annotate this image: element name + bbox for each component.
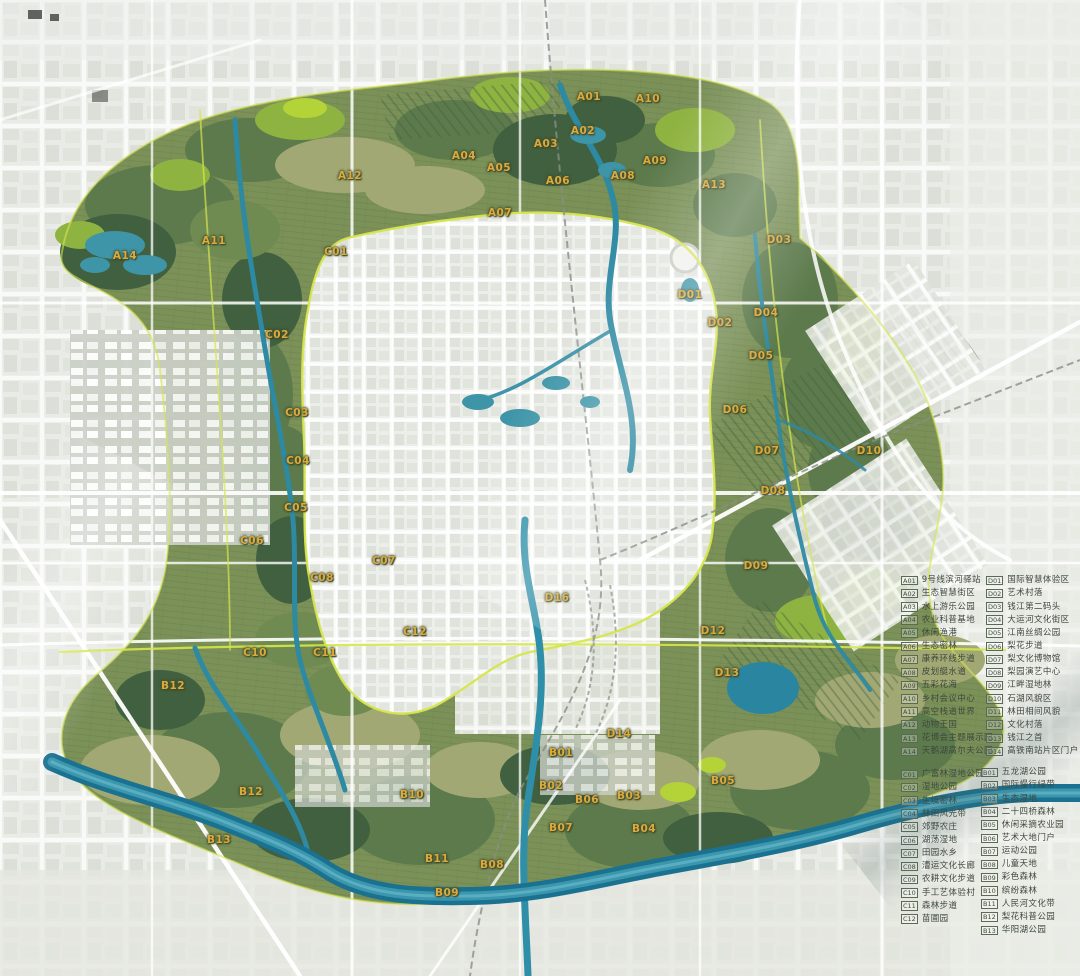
legend-label-text: 国际智慧体验区 — [1007, 576, 1069, 585]
legend-label-text: 休闲渔港 — [922, 629, 958, 638]
legend-label-text: 康养环线步道 — [922, 655, 975, 664]
legend-label-text: 农耕文化步道 — [922, 875, 975, 884]
legend-label-text: 艺术村落 — [1007, 589, 1043, 598]
legend-label-text: 生境密林 — [922, 797, 958, 806]
legend-label-text: 文化村落 — [1007, 721, 1043, 730]
legend-code-box: B08 — [981, 860, 998, 870]
legend-code-box: C02 — [901, 783, 918, 793]
legend-item-d07: D07梨文化博物馆 — [986, 653, 1078, 666]
legend-label-text: 漕运文化长廊 — [922, 862, 975, 871]
legend-item-b02: B02国际慢行绿带 — [981, 779, 1064, 792]
legend-label-text: 生态湿地 — [1002, 795, 1038, 804]
legend-item-d05: D05江南丝绸公园 — [986, 627, 1078, 640]
legend-code-box: C11 — [901, 901, 918, 911]
legend-item-c07: C07田园水乡 — [901, 847, 984, 860]
legend-label-text: 彩色森林 — [1002, 873, 1038, 882]
legend-code-box: D06 — [986, 642, 1003, 652]
map-region-label-a01: A01 — [577, 91, 601, 103]
legend-label-text: 钱江第二码头 — [1007, 603, 1060, 612]
legend-group-zone-d: D01国际智慧体验区D02艺术村落D03钱江第二码头D04大运河文化街区D05江… — [986, 574, 1078, 758]
map-region-label-d03: D03 — [767, 234, 792, 246]
map-region-label-a03: A03 — [534, 138, 558, 150]
legend-code-box: C06 — [901, 836, 918, 846]
legend-code-box: B01 — [981, 768, 998, 778]
map-region-label-a04: A04 — [452, 150, 476, 162]
map-region-label-c08: C08 — [310, 572, 334, 584]
legend-code-box: D11 — [986, 707, 1003, 717]
legend-label-text: 高铁南站片区门户 — [1007, 747, 1078, 756]
legend-code-box: B13 — [981, 926, 998, 936]
map-region-label-d16: D16 — [545, 592, 570, 604]
map-region-label-b02: B02 — [539, 780, 563, 792]
planning-map-page: A01A02A03A04A05A06A07A08A09A10A11A12A13A… — [0, 0, 1080, 976]
map-region-label-d04: D04 — [754, 307, 779, 319]
legend-label-text: 水上游乐公园 — [922, 603, 975, 612]
map-region-label-b09: B09 — [435, 887, 459, 899]
map-region-label-c03: C03 — [285, 407, 309, 419]
legend-label-text: 石湖风貌区 — [1007, 695, 1052, 704]
map-region-label-c01: C01 — [324, 246, 348, 258]
map-region-label-b08: B08 — [480, 859, 504, 871]
map-region-label-a11: A11 — [202, 235, 226, 247]
map-region-label-d01: D01 — [678, 289, 703, 301]
map-region-label-b04: B04 — [632, 823, 656, 835]
legend-item-d14: D14高铁南站片区门户 — [986, 745, 1078, 758]
map-region-label-a05: A05 — [487, 162, 511, 174]
legend-item-a09: A09五彩花海 — [901, 679, 993, 692]
legend-item-d13: D13钱江之首 — [986, 732, 1078, 745]
legend-label-text: 国际慢行绿带 — [1002, 781, 1055, 790]
legend-item-a04: A04农业科普基地 — [901, 613, 993, 626]
legend-item-d08: D08梨园演艺中心 — [986, 666, 1078, 679]
legend-code-box: D09 — [986, 681, 1003, 691]
legend-label-text: 大运河文化街区 — [1007, 616, 1069, 625]
legend-item-a10: A10乡村会议中心 — [901, 692, 993, 705]
legend-label-text: 郊野农庄 — [922, 823, 958, 832]
legend-item-b06: B06艺术大地门户 — [981, 832, 1064, 845]
legend-label-text: 运动公园 — [1002, 847, 1038, 856]
legend-item-a05: A05休闲渔港 — [901, 627, 993, 640]
legend-item-c06: C06湖荡湿地 — [901, 834, 984, 847]
legend-code-box: A07 — [901, 655, 918, 665]
legend-item-b11: B11人民河文化带 — [981, 897, 1064, 910]
map-region-label-a07: A07 — [488, 207, 512, 219]
legend-label-text: 林田风光带 — [922, 810, 967, 819]
legend-code-box: C01 — [901, 770, 918, 780]
map-region-label-b10: B10 — [400, 789, 424, 801]
legend-item-d04: D04大运河文化街区 — [986, 613, 1078, 626]
legend-label-text: 五彩花海 — [922, 681, 958, 690]
map-region-label-a06: A06 — [546, 175, 570, 187]
map-region-label-a09: A09 — [643, 155, 667, 167]
map-region-label-d12: D12 — [701, 625, 726, 637]
legend-label-text: 林田相间风貌 — [1007, 708, 1060, 717]
legend-label-text: 江畔湿地林 — [1007, 681, 1052, 690]
legend-code-box: C07 — [901, 849, 918, 859]
legend-code-box: A10 — [901, 694, 918, 704]
legend-code-box: B06 — [981, 834, 998, 844]
legend-code-box: A09 — [901, 681, 918, 691]
map-region-label-a14: A14 — [113, 250, 137, 262]
legend-label-text: 五龙湖公园 — [1002, 768, 1047, 777]
legend-code-box: D02 — [986, 589, 1003, 599]
legend-label-text: 9号线滨河驿站 — [922, 576, 981, 585]
legend-code-box: B09 — [981, 873, 998, 883]
legend-code-box: D05 — [986, 628, 1003, 638]
legend-item-a12: A12动物王国 — [901, 719, 993, 732]
legend-item-b07: B07运动公园 — [981, 845, 1064, 858]
legend-label-text: 江南丝绸公园 — [1007, 629, 1060, 638]
legend-label-text: 二十四桥森林 — [1002, 808, 1055, 817]
legend-code-box: A06 — [901, 642, 918, 652]
legend-code-box: A11 — [901, 707, 918, 717]
legend-label-text: 天鹅湖高尔夫公园 — [922, 747, 993, 756]
legend-code-box: D08 — [986, 668, 1003, 678]
legend-code-box: D10 — [986, 694, 1003, 704]
map-region-label-d09: D09 — [744, 560, 769, 572]
legend-code-box: A02 — [901, 589, 918, 599]
legend-item-b05: B05休闲采摘农业园 — [981, 819, 1064, 832]
map-region-label-d08: D08 — [761, 485, 786, 497]
legend-label-text: 休闲采摘农业园 — [1002, 821, 1064, 830]
map-region-label-a12: A12 — [338, 170, 362, 182]
legend-item-b08: B08儿童天地 — [981, 858, 1064, 871]
legend-label-text: 森林步道 — [922, 902, 958, 911]
legend-label-text: 梨花步道 — [1007, 642, 1043, 651]
map-region-label-b11: B11 — [425, 853, 449, 865]
legend-item-b04: B04二十四桥森林 — [981, 805, 1064, 818]
map-region-label-c06: C06 — [240, 535, 264, 547]
legend-group-zone-a: A019号线滨河驿站A02生态智慧街区A03水上游乐公园A04农业科普基地A05… — [901, 574, 993, 758]
legend-label-text: 梨文化博物馆 — [1007, 655, 1060, 664]
legend-code-box: B04 — [981, 807, 998, 817]
legend-item-b03: B03生态湿地 — [981, 792, 1064, 805]
legend-code-box: D03 — [986, 602, 1003, 612]
map-region-label-c02: C02 — [265, 329, 289, 341]
legend-label-text: 高空栈道世界 — [922, 708, 975, 717]
legend-item-d12: D12文化村落 — [986, 719, 1078, 732]
legend-label-text: 广富林湿地公园 — [922, 770, 984, 779]
map-region-label-b03: B03 — [617, 790, 641, 802]
legend-code-box: D14 — [986, 747, 1003, 757]
legend-label-text: 湖荡湿地 — [922, 836, 958, 845]
legend-label-text: 田园水乡 — [922, 849, 958, 858]
legend-label-text: 钱江之首 — [1007, 734, 1043, 743]
legend-code-box: A13 — [901, 734, 918, 744]
legend-item-c11: C11森林步道 — [901, 899, 984, 912]
legend-item-d10: D10石湖风貌区 — [986, 692, 1078, 705]
legend-code-box: A04 — [901, 615, 918, 625]
map-region-label-c05: C05 — [284, 502, 308, 514]
legend-item-d11: D11林田相间风貌 — [986, 705, 1078, 718]
map-region-label-d14: D14 — [607, 728, 632, 740]
legend-item-c08: C08漕运文化长廊 — [901, 860, 984, 873]
legend-item-c04: C04林田风光带 — [901, 807, 984, 820]
legend-code-box: B12 — [981, 912, 998, 922]
legend-item-d06: D06梨花步道 — [986, 640, 1078, 653]
legend-item-a03: A03水上游乐公园 — [901, 600, 993, 613]
legend-code-box: B02 — [981, 781, 998, 791]
legend-label-text: 缤纷森林 — [1002, 887, 1038, 896]
legend-label-text: 湿地公园 — [922, 783, 958, 792]
legend-item-c01: C01广富林湿地公园 — [901, 768, 984, 781]
legend-code-box: A05 — [901, 628, 918, 638]
map-region-label-c04: C04 — [286, 455, 310, 467]
legend-code-box: A03 — [901, 602, 918, 612]
map-region-label-c11: C11 — [313, 647, 337, 659]
legend-code-box: B11 — [981, 899, 998, 909]
legend-item-c10: C10手工艺体验村 — [901, 886, 984, 899]
legend-item-a08: A08皮划艇水道 — [901, 666, 993, 679]
map-region-label-b12: B12 — [239, 786, 263, 798]
legend-code-box: D13 — [986, 734, 1003, 744]
map-region-label-d13: D13 — [715, 667, 740, 679]
map-region-label-b06: B06 — [575, 794, 599, 806]
legend-code-box: C05 — [901, 822, 918, 832]
legend-code-box: C09 — [901, 875, 918, 885]
legend-label-text: 动物王国 — [922, 721, 958, 730]
map-region-label-d07: D07 — [755, 445, 780, 457]
legend-item-b09: B09彩色森林 — [981, 871, 1064, 884]
legend-code-box: A12 — [901, 720, 918, 730]
legend-code-box: C12 — [901, 914, 918, 924]
legend-code-box: D04 — [986, 615, 1003, 625]
legend-code-box: C04 — [901, 809, 918, 819]
legend-item-a06: A06生态密林 — [901, 640, 993, 653]
map-region-label-b05: B05 — [711, 775, 735, 787]
legend-code-box: A01 — [901, 576, 918, 586]
legend-item-b10: B10缤纷森林 — [981, 884, 1064, 897]
legend-label-text: 花博会主题展示园 — [922, 734, 993, 743]
legend-code-box: A14 — [901, 747, 918, 757]
legend-item-c09: C09农耕文化步道 — [901, 873, 984, 886]
legend-item-a13: A13花博会主题展示园 — [901, 732, 993, 745]
legend-item-c03: C03生境密林 — [901, 794, 984, 807]
legend-code-box: A08 — [901, 668, 918, 678]
legend-item-d02: D02艺术村落 — [986, 587, 1078, 600]
legend-item-b13: B13华阳湖公园 — [981, 924, 1064, 937]
map-region-label-c10: C10 — [243, 647, 267, 659]
legend-label-text: 手工艺体验村 — [922, 889, 975, 898]
legend-label-text: 苗圃园 — [922, 915, 949, 924]
legend-label-text: 梨花科普公园 — [1002, 913, 1055, 922]
legend-item-d03: D03钱江第二码头 — [986, 600, 1078, 613]
legend-label-text: 人民河文化带 — [1002, 900, 1055, 909]
legend-item-c02: C02湿地公园 — [901, 781, 984, 794]
legend-code-box: B07 — [981, 847, 998, 857]
legend-label-text: 生态智慧街区 — [922, 589, 975, 598]
legend-code-box: C08 — [901, 862, 918, 872]
legend-label-text: 梨园演艺中心 — [1007, 668, 1060, 677]
legend-label-text: 艺术大地门户 — [1002, 834, 1055, 843]
legend-item-a02: A02生态智慧街区 — [901, 587, 993, 600]
legend-code-box: D12 — [986, 720, 1003, 730]
legend-item-c12: C12苗圃园 — [901, 913, 984, 926]
legend-item-a01: A019号线滨河驿站 — [901, 574, 993, 587]
map-region-label-b07: B07 — [549, 822, 573, 834]
legend-label-text: 华阳湖公园 — [1002, 926, 1047, 935]
legend-group-zone-c: C01广富林湿地公园C02湿地公园C03生境密林C04林田风光带C05郊野农庄C… — [901, 768, 984, 926]
legend-code-box: D01 — [986, 576, 1003, 586]
map-region-label-a02: A02 — [571, 125, 595, 137]
legend-code-box: B10 — [981, 886, 998, 896]
map-region-label-d02: D02 — [708, 317, 733, 329]
legend-group-zone-b: B01五龙湖公园B02国际慢行绿带B03生态湿地B04二十四桥森林B05休闲采摘… — [981, 766, 1064, 937]
legend-item-d01: D01国际智慧体验区 — [986, 574, 1078, 587]
legend-item-a07: A07康养环线步道 — [901, 653, 993, 666]
legend-label-text: 皮划艇水道 — [922, 668, 967, 677]
map-region-label-a10: A10 — [636, 93, 660, 105]
legend-label-text: 生态密林 — [922, 642, 958, 651]
legend-item-d09: D09江畔湿地林 — [986, 679, 1078, 692]
legend-code-box: C03 — [901, 796, 918, 806]
legend-item-b01: B01五龙湖公园 — [981, 766, 1064, 779]
legend-label-text: 乡村会议中心 — [922, 695, 975, 704]
legend-code-box: D07 — [986, 655, 1003, 665]
legend-item-c05: C05郊野农庄 — [901, 821, 984, 834]
map-region-label-a13: A13 — [702, 179, 726, 191]
legend-code-box: C10 — [901, 888, 918, 898]
legend-label-text: 农业科普基地 — [922, 616, 975, 625]
legend-code-box: B03 — [981, 794, 998, 804]
legend-code-box: B05 — [981, 820, 998, 830]
legend-label-text: 儿童天地 — [1002, 860, 1038, 869]
legend-item-b12: B12梨花科普公园 — [981, 911, 1064, 924]
map-region-label-c12: C12 — [403, 626, 427, 638]
map-region-label-b12: B12 — [161, 680, 185, 692]
map-region-label-a08: A08 — [611, 170, 635, 182]
map-region-label-b13: B13 — [207, 834, 231, 846]
legend-item-a14: A14天鹅湖高尔夫公园 — [901, 745, 993, 758]
legend-item-a11: A11高空栈道世界 — [901, 705, 993, 718]
map-region-label-d10: D10 — [857, 445, 882, 457]
map-region-label-d05: D05 — [749, 350, 774, 362]
map-region-label-d06: D06 — [723, 404, 748, 416]
map-region-label-c07: C07 — [372, 555, 396, 567]
map-region-label-b01: B01 — [549, 747, 573, 759]
